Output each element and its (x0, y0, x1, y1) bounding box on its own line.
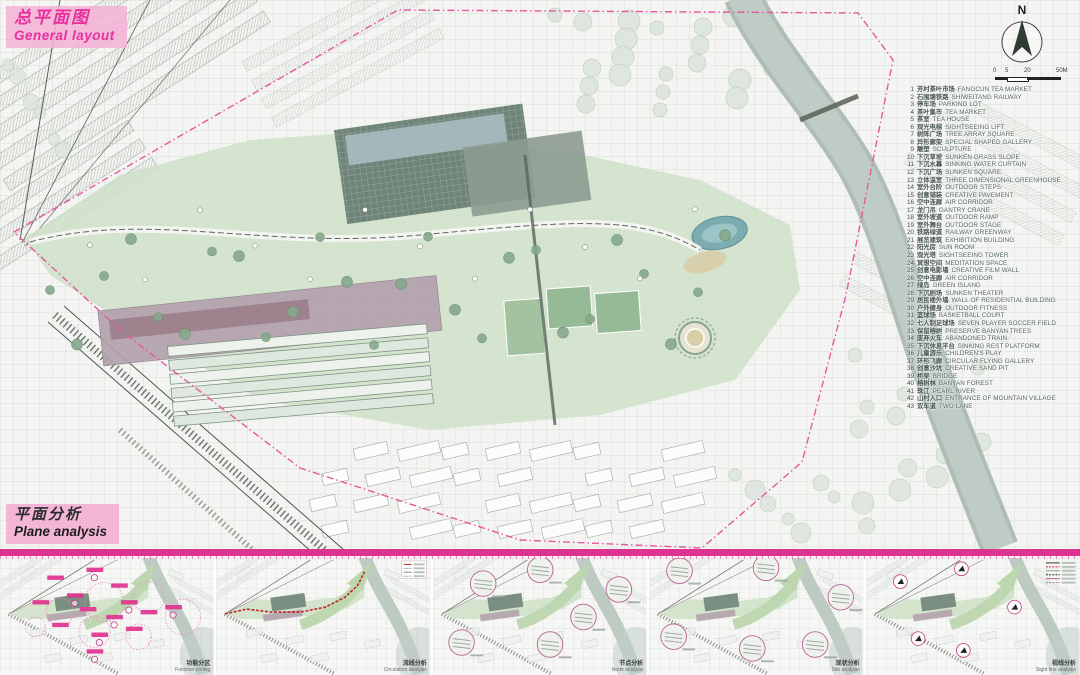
legend-item-en: SHIWEITANG RAILWAY (951, 94, 1021, 102)
legend-item-zh: 阳光房 (917, 244, 936, 252)
legend-item: 29居民楼外墙WALL OF RESIDENTIAL BUILDING (903, 297, 1079, 305)
legend-item: 27绿岛GREEN ISLAND (903, 282, 1079, 290)
general-layout-title-block: 总平面图 General layout (6, 6, 127, 48)
legend-item-zh: 立体温室 (917, 177, 942, 185)
legend-item-zh: 冥想空间 (917, 260, 942, 268)
legend-item: 18室外坡道OUTDOOR RAMP (903, 214, 1079, 222)
divider-ruler-ticks (0, 556, 1080, 559)
analysis-panel-4: 现状分析 Site analysis (649, 558, 863, 675)
legend-item-zh: 儿童游乐 (917, 350, 942, 358)
legend-item-num: 43 (903, 403, 914, 411)
legend-item-en: MEDITATION SPACE (945, 260, 1007, 268)
legend-item-en: TEA HOUSE (933, 116, 970, 124)
legend-item-zh: 观光塔 (917, 252, 936, 260)
context-buildings-top-mid (242, 0, 445, 127)
legend-item-zh: 七人制足球场 (917, 320, 955, 328)
legend-item: 5茶室TEA HOUSE (903, 116, 1079, 124)
legend-item-zh: 树阵广场 (917, 131, 942, 139)
legend-item: 38创意沙坑CREATIVE SAND PIT (903, 365, 1079, 373)
legend-item: 35下沉休息平台SINKING REST PLATFORM (903, 343, 1079, 351)
legend-item-en: FANGCUN TEA MARKET (958, 86, 1032, 94)
legend-item-en: BANYAN FOREST (939, 380, 993, 388)
legend-item-en: CREATIVE FILM WALL (951, 267, 1019, 275)
legend-item-en: SIGHTSEEING TOWER (939, 252, 1009, 260)
legend-item-en: OUTDOOR RAMP (945, 214, 998, 222)
legend-item-num: 22 (903, 244, 914, 252)
legend-item-zh: 室外台阶 (917, 184, 942, 192)
scale-segment (1027, 77, 1061, 80)
legend-item-num: 9 (903, 146, 914, 154)
legend-item-num: 29 (903, 297, 914, 305)
legend-item-en: SUN ROOM (939, 244, 974, 252)
legend-item-en: PARKING LOT (939, 101, 982, 109)
legend-item-zh: 停车场 (917, 101, 936, 109)
legend-item-zh: 空中连廊 (917, 199, 942, 207)
scale-label-0: 0 (993, 68, 996, 74)
plane-analysis-title-block: 平面分析 Plane analysis (6, 504, 119, 544)
legend-item-en: THREE DIMENSIONAL GREENHOUSE (945, 177, 1061, 185)
legend-item-en: PRESERVE BANYAN TREES (945, 328, 1031, 336)
legend-item-num: 14 (903, 184, 914, 192)
legend-item: 31篮球场BASKETBALL COURT (903, 312, 1079, 320)
analysis-title-en: Plane analysis (14, 524, 107, 540)
legend-item-num: 25 (903, 267, 914, 275)
legend-item-num: 1 (903, 86, 914, 94)
legend-item-en: RAILWAY GREENWAY (945, 229, 1011, 237)
legend-item-zh: 榕树林 (917, 380, 936, 388)
panel-caption: 流线分析 Circulation analysis (384, 661, 427, 673)
legend-item: 36儿童游乐CHILDREN'S PLAY (903, 350, 1079, 358)
panel-caption: 视线分析 Sight line analysis (1036, 661, 1076, 673)
legend-item-en: WALL OF RESIDENTIAL BUILDING (951, 297, 1055, 305)
legend-item-num: 16 (903, 199, 914, 207)
analysis-panel-1: 功能分区 Function zoning (0, 558, 214, 675)
scale-segment (995, 77, 1007, 80)
legend-item: 7树阵广场TREE ARRAY SQUARE (903, 131, 1079, 139)
legend-item-zh: 双车道 (917, 403, 936, 411)
legend-item-num: 31 (903, 312, 914, 320)
legend-item-num: 34 (903, 335, 914, 343)
legend-item-zh: 雕塑 (917, 146, 930, 154)
analysis-panel-3: 节点分析 Node analysis (433, 558, 647, 675)
title-zh: 总平面图 (14, 9, 115, 28)
legend-item-num: 38 (903, 365, 914, 373)
legend-item-num: 23 (903, 252, 914, 260)
legend-item-zh: 室外坡道 (917, 214, 942, 222)
legend-item-num: 33 (903, 328, 914, 336)
legend-item-en: BASKETBALL COURT (939, 312, 1005, 320)
legend-list: 1芳村茶叶市场FANGCUN TEA MARKET2石围塘铁路SHIWEITAN… (903, 86, 1079, 411)
legend-item-num: 7 (903, 131, 914, 139)
legend-item-num: 32 (903, 320, 914, 328)
legend-item-zh: 居民楼外墙 (917, 297, 948, 305)
legend-item-zh: 茶室 (917, 116, 930, 124)
legend-item-en: SCULPTURE (933, 146, 972, 154)
legend-item-num: 27 (903, 282, 914, 290)
legend-item-num: 20 (903, 229, 914, 237)
legend-item-num: 24 (903, 260, 914, 268)
analysis-panel-2: 流线分析 Circulation analysis (216, 558, 430, 675)
legend-item: 1芳村茶叶市场FANGCUN TEA MARKET (903, 86, 1079, 94)
scale-segment (1007, 77, 1029, 82)
legend-item-zh: 篮球场 (917, 312, 936, 320)
legend-item-en: OUTDOOR STEPS (945, 184, 1001, 192)
legend-item-zh: 芳村茶叶市场 (917, 86, 955, 94)
legend-item-en: ENTRANCE OF MOUNTAIN VILLAGE (945, 395, 1056, 403)
analysis-panel-5: 视线分析 Sight line analysis (866, 558, 1080, 675)
legend-item-num: 2 (903, 94, 914, 102)
panel-caption-en: Site analysis (832, 668, 860, 674)
scale-label-20: 20 (1024, 68, 1031, 74)
legend-item-zh: 创意电影墙 (917, 267, 948, 275)
legend-item-en: SINKING REST PLATFORM (958, 343, 1040, 351)
legend-item: 24冥想空间MEDITATION SPACE (903, 260, 1079, 268)
legend-item: 12下沉广场SUNKEN SQUARE (903, 169, 1079, 177)
legend-item-num: 5 (903, 116, 914, 124)
legend-item: 22阳光房SUN ROOM (903, 244, 1079, 252)
title-en: General layout (14, 28, 115, 44)
legend-item-en: SEVEN PLAYER SOCCER FIELD (958, 320, 1056, 328)
legend-item-en: CHILDREN'S PLAY (945, 350, 1001, 358)
legend-item-num: 35 (903, 343, 914, 351)
legend-item-num: 12 (903, 169, 914, 177)
scale-label-5: 5 (1005, 68, 1008, 74)
legend-item-num: 36 (903, 350, 914, 358)
legend-item: 25创意电影墙CREATIVE FILM WALL (903, 267, 1079, 275)
scale-label-50m: 50M (1056, 68, 1068, 74)
legend-item-en: TREE ARRAY SQUARE (945, 131, 1014, 139)
legend-item: 9雕塑SCULPTURE (903, 146, 1079, 154)
panel-caption: 功能分区 Function zoning (175, 661, 210, 673)
legend-item: 3停车场PARKING LOT (903, 101, 1079, 109)
magenta-divider-bar (0, 549, 1080, 556)
analysis-panel-strip: 功能分区 Function zoning 流线分析 Circulation an… (0, 558, 1080, 675)
legend-item-zh: 下沉广场 (917, 169, 942, 177)
north-arrow: N (1002, 3, 1042, 62)
legend-item-zh: 山村入口 (917, 395, 942, 403)
legend-item-zh: 废弃火车 (917, 335, 942, 343)
legend-item-en: CREATIVE SAND PIT (945, 365, 1009, 373)
legend-item: 23观光塔SIGHTSEEING TOWER (903, 252, 1079, 260)
legend-item-zh: 石围塘铁路 (917, 94, 948, 102)
legend-item: 13立体温室THREE DIMENSIONAL GREENHOUSE (903, 177, 1079, 185)
legend-item: 2石围塘铁路SHIWEITANG RAILWAY (903, 94, 1079, 102)
legend-item-num: 3 (903, 101, 914, 109)
legend-item: 42山村入口ENTRANCE OF MOUNTAIN VILLAGE (903, 395, 1079, 403)
legend-item-num: 40 (903, 380, 914, 388)
legend-item-num: 42 (903, 395, 914, 403)
legend-item-zh: 绿岛 (917, 282, 930, 290)
legend-item-zh: 保留榕树 (917, 328, 942, 336)
legend-item-en: ABANDONED TRAIN (945, 335, 1007, 343)
legend-item-zh: 下沉休息平台 (917, 343, 955, 351)
svg-text:N: N (1018, 3, 1027, 17)
legend-item: 40榕树林BANYAN FOREST (903, 380, 1079, 388)
legend-item-en: SUNKEN SQUARE (945, 169, 1001, 177)
legend-item-zh: 铁路绿道 (917, 229, 942, 237)
legend-item-en: SINKING WATER CURTAIN (945, 161, 1026, 169)
legend-item-zh: 下沉水幕 (917, 161, 942, 169)
panel-caption-en: Sight line analysis (1036, 668, 1076, 674)
panel-caption-en: Node analysis (612, 668, 643, 674)
legend-item: 33保留榕树PRESERVE BANYAN TREES (903, 328, 1079, 336)
legend-item-en: TWO LANE (939, 403, 973, 411)
panel-caption-en: Function zoning (175, 668, 210, 674)
legend-item: 34废弃火车ABANDONED TRAIN (903, 335, 1079, 343)
legend-item: 16空中连廊AIR CORRIDOR (903, 199, 1079, 207)
legend-item: 14室外台阶OUTDOOR STEPS (903, 184, 1079, 192)
legend-item-en: GREEN ISLAND (933, 282, 981, 290)
legend-item: 20铁路绿道RAILWAY GREENWAY (903, 229, 1079, 237)
village-blocks (309, 440, 717, 539)
panel-caption: 现状分析 Site analysis (832, 661, 860, 673)
legend-item-num: 13 (903, 177, 914, 185)
legend-item: 32七人制足球场SEVEN PLAYER SOCCER FIELD (903, 320, 1079, 328)
legend-item-zh: 创意沙坑 (917, 365, 942, 373)
panel-caption: 节点分析 Node analysis (612, 661, 643, 673)
panel-caption-en: Circulation analysis (384, 668, 427, 674)
legend-item-en: AIR CORRIDOR (945, 199, 993, 207)
legend-item: 11下沉水幕SINKING WATER CURTAIN (903, 161, 1079, 169)
legend-item-num: 18 (903, 214, 914, 222)
legend-item: 43双车道TWO LANE (903, 403, 1079, 411)
legend-item-num: 11 (903, 161, 914, 169)
analysis-title-zh: 平面分析 (14, 507, 107, 524)
